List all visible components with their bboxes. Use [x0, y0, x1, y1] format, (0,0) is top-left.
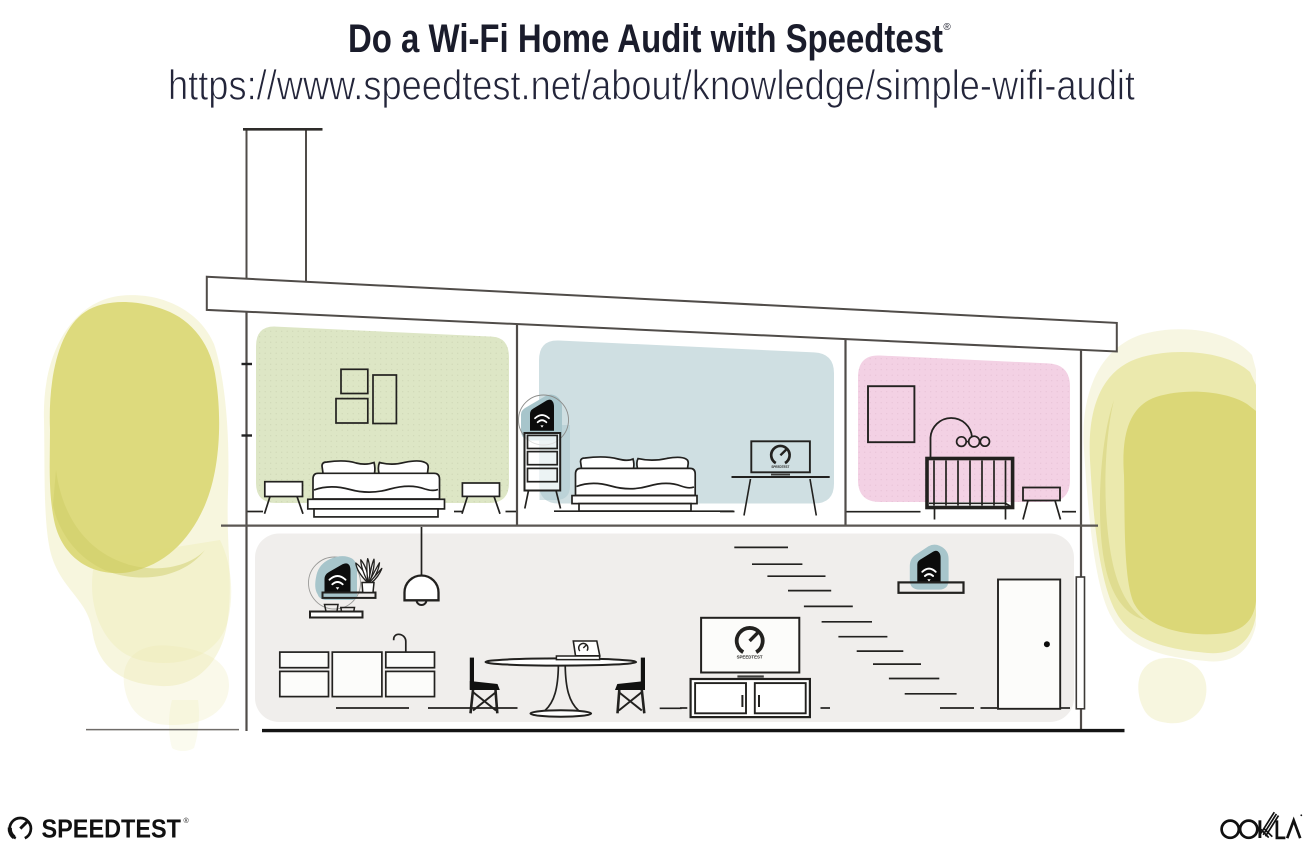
svg-text:SPEEDTEST: SPEEDTEST: [771, 465, 790, 469]
svg-text:SPEEDTEST: SPEEDTEST: [42, 816, 182, 844]
svg-text:®: ®: [943, 22, 951, 33]
svg-text:®: ®: [184, 817, 190, 825]
svg-text:https://www.speedtest.net/abou: https://www.speedtest.net/about/knowledg…: [168, 62, 1135, 109]
svg-text:Do a Wi-Fi Home Audit with Spe: Do a Wi-Fi Home Audit with Speedtest: [348, 17, 943, 61]
svg-text:SPEEDTEST: SPEEDTEST: [737, 655, 763, 660]
